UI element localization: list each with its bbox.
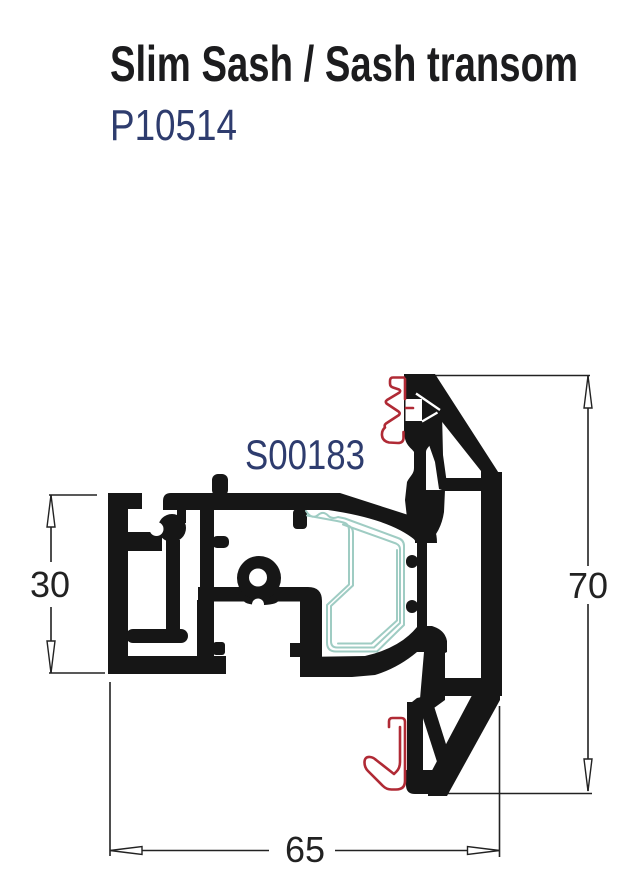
svg-text:30: 30	[30, 564, 70, 605]
svg-text:70: 70	[568, 565, 608, 606]
svg-text:P10514: P10514	[110, 101, 237, 150]
svg-text:65: 65	[285, 829, 325, 870]
svg-text:Slim Sash / Sash transom: Slim Sash / Sash transom	[110, 36, 578, 92]
svg-text:S00183: S00183	[245, 431, 365, 478]
